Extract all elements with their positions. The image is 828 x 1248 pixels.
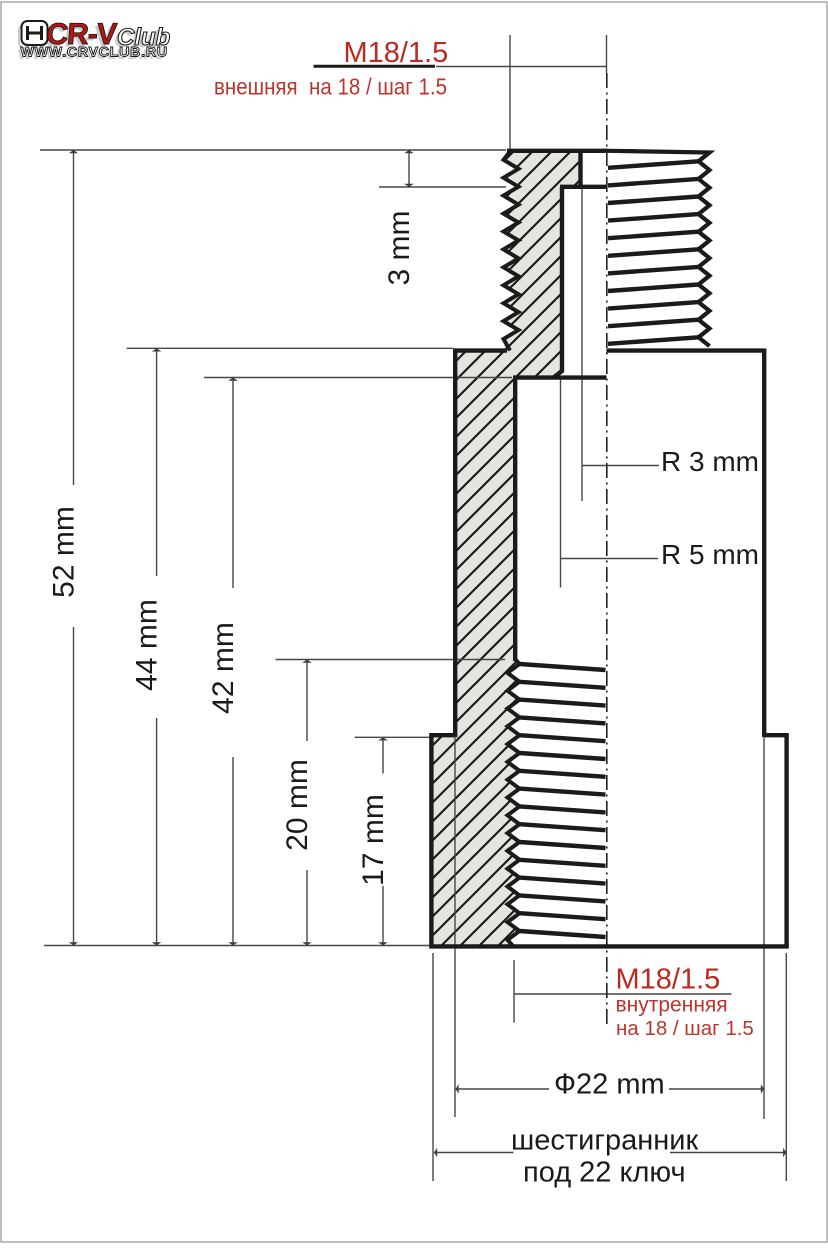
svg-text:R 3 mm: R 3 mm bbox=[661, 446, 759, 477]
svg-text:шестигранник: шестигранник bbox=[511, 1125, 698, 1157]
svg-text:3 mm: 3 mm bbox=[383, 211, 416, 286]
svg-text:внутренняя: внутренняя bbox=[616, 994, 728, 1017]
svg-text:17 mm: 17 mm bbox=[357, 794, 390, 886]
svg-text:WWW.CRVCLUB.RU: WWW.CRVCLUB.RU bbox=[21, 45, 168, 61]
svg-text:52 mm: 52 mm bbox=[48, 506, 81, 598]
svg-text:внешняя на 18 / шаг 1.5: внешняя на 18 / шаг 1.5 bbox=[214, 74, 447, 100]
svg-text:под 22 ключ: под 22 ключ bbox=[523, 1157, 686, 1189]
svg-text:М18/1.5: М18/1.5 bbox=[344, 37, 449, 69]
svg-text:R 5 mm: R 5 mm bbox=[661, 539, 759, 570]
svg-text:42 mm: 42 mm bbox=[207, 622, 240, 714]
svg-text:М18/1.5: М18/1.5 bbox=[616, 964, 721, 996]
svg-text:20 mm: 20 mm bbox=[281, 759, 314, 851]
svg-text:44 mm: 44 mm bbox=[131, 599, 164, 691]
svg-text:Ф22 mm: Ф22 mm bbox=[554, 1069, 665, 1101]
svg-text:на 18 / шаг 1.5: на 18 / шаг 1.5 bbox=[616, 1017, 754, 1040]
